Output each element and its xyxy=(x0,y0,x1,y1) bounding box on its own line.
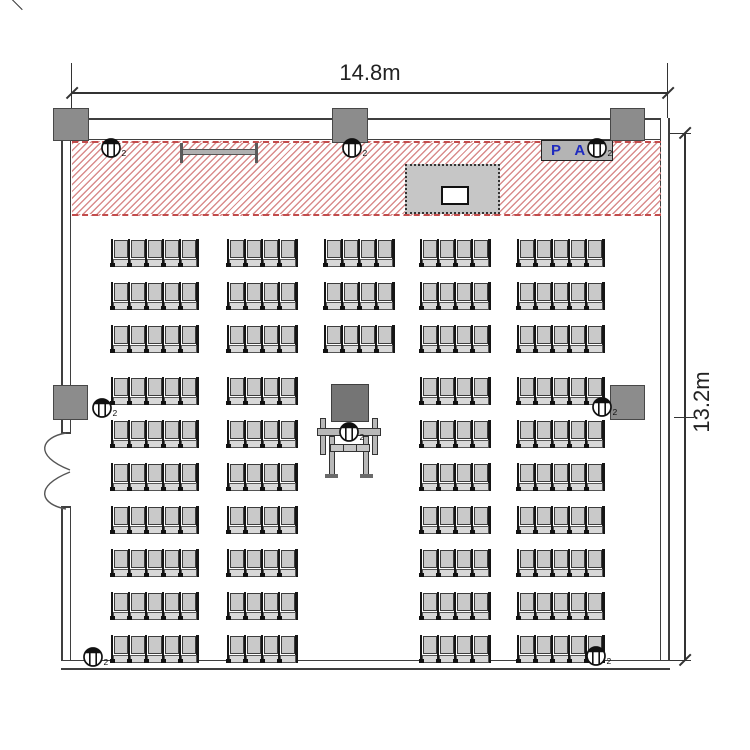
seat xyxy=(471,325,488,353)
seat-group xyxy=(227,549,298,577)
seat xyxy=(585,282,602,310)
seat xyxy=(534,549,551,577)
seat xyxy=(517,592,534,620)
seat xyxy=(534,282,551,310)
height-dimension-label: 13.2m xyxy=(689,362,715,442)
seat xyxy=(358,325,375,353)
seat xyxy=(179,282,196,310)
seat xyxy=(128,239,145,267)
seat-group xyxy=(420,282,491,310)
wall-right xyxy=(660,118,670,670)
seat-group xyxy=(111,635,199,663)
seat xyxy=(179,463,196,491)
seat-group xyxy=(420,506,491,534)
seat xyxy=(128,282,145,310)
seat xyxy=(585,592,602,620)
seat xyxy=(324,325,341,353)
seat xyxy=(471,377,488,405)
seat xyxy=(517,377,534,405)
seat xyxy=(261,635,278,663)
seat-group xyxy=(227,635,298,663)
seat xyxy=(278,463,295,491)
seat xyxy=(568,635,585,663)
seat xyxy=(517,325,534,353)
seat-group xyxy=(227,282,298,310)
seat-group xyxy=(420,463,491,491)
seat xyxy=(128,377,145,405)
seat xyxy=(420,635,437,663)
seat xyxy=(437,239,454,267)
seat xyxy=(341,325,358,353)
seat-group xyxy=(517,325,605,353)
floor-plan: 14.8m 13.2m P A 22222222 xyxy=(0,0,750,750)
seat xyxy=(471,282,488,310)
seat-group xyxy=(111,325,199,353)
speaker-count-label: 2 xyxy=(363,148,368,158)
seat-group xyxy=(227,420,298,448)
seat xyxy=(111,592,128,620)
seat xyxy=(454,420,471,448)
seat xyxy=(454,325,471,353)
seat xyxy=(145,239,162,267)
seat xyxy=(128,506,145,534)
seat-group xyxy=(324,325,395,353)
seat xyxy=(375,239,392,267)
seat xyxy=(278,635,295,663)
seat xyxy=(437,325,454,353)
seat-group xyxy=(517,463,605,491)
seat xyxy=(244,282,261,310)
seat-group xyxy=(420,377,491,405)
seat xyxy=(244,549,261,577)
seat xyxy=(358,239,375,267)
seat xyxy=(111,506,128,534)
seat xyxy=(145,420,162,448)
ceiling-speaker-icon: 2 xyxy=(339,421,369,445)
seat xyxy=(454,506,471,534)
seat xyxy=(162,325,179,353)
seat xyxy=(324,282,341,310)
seat xyxy=(179,592,196,620)
seat-group xyxy=(227,325,298,353)
seat xyxy=(454,377,471,405)
ceiling-speaker-icon: 2 xyxy=(592,396,622,420)
seat xyxy=(517,282,534,310)
seat xyxy=(551,420,568,448)
dimension-line-top xyxy=(72,92,668,94)
seat xyxy=(145,377,162,405)
whiteboard xyxy=(182,149,256,155)
column-pillar xyxy=(53,108,89,141)
dimension-extension-bottom-right xyxy=(670,660,691,661)
cart-post xyxy=(320,418,326,455)
seat xyxy=(227,592,244,620)
seat xyxy=(471,592,488,620)
projector xyxy=(331,384,369,422)
seat-group xyxy=(517,549,605,577)
seat xyxy=(128,420,145,448)
seat xyxy=(111,420,128,448)
seat xyxy=(179,635,196,663)
seat xyxy=(162,282,179,310)
seat xyxy=(517,239,534,267)
seat xyxy=(128,463,145,491)
seat-group xyxy=(111,463,199,491)
seat xyxy=(534,592,551,620)
speaker-count-label: 2 xyxy=(608,148,613,158)
seat-group xyxy=(324,282,395,310)
seat xyxy=(420,282,437,310)
seat xyxy=(471,506,488,534)
seat xyxy=(568,377,585,405)
seat xyxy=(162,549,179,577)
seat xyxy=(128,325,145,353)
seat xyxy=(162,377,179,405)
seat xyxy=(261,377,278,405)
seat xyxy=(244,377,261,405)
seat-group xyxy=(420,420,491,448)
ceiling-speaker-icon: 2 xyxy=(83,646,113,670)
seat xyxy=(358,282,375,310)
seat-group xyxy=(517,239,605,267)
seat xyxy=(227,325,244,353)
ceiling-speaker-icon: 2 xyxy=(342,137,372,161)
seat xyxy=(179,549,196,577)
cart-shelf xyxy=(330,444,370,452)
seat-group xyxy=(111,377,199,405)
seat xyxy=(420,377,437,405)
seat xyxy=(227,377,244,405)
seat xyxy=(111,239,128,267)
seat xyxy=(261,282,278,310)
seat xyxy=(437,635,454,663)
seat xyxy=(585,506,602,534)
seat xyxy=(278,239,295,267)
seat xyxy=(111,463,128,491)
seat xyxy=(534,506,551,534)
seat xyxy=(179,420,196,448)
seat xyxy=(437,506,454,534)
ceiling-speaker-icon: 2 xyxy=(586,645,616,669)
cart-foot xyxy=(360,474,373,478)
seat xyxy=(261,420,278,448)
seat-group xyxy=(420,549,491,577)
seat xyxy=(111,549,128,577)
seat xyxy=(471,239,488,267)
seat-group xyxy=(111,282,199,310)
seat xyxy=(551,282,568,310)
seat xyxy=(278,506,295,534)
seat-group xyxy=(111,420,199,448)
seat xyxy=(534,239,551,267)
seat xyxy=(227,420,244,448)
cart-post xyxy=(372,418,378,455)
seat xyxy=(261,463,278,491)
speaker-count-label: 2 xyxy=(113,408,118,418)
seat xyxy=(568,463,585,491)
seat xyxy=(551,325,568,353)
seat xyxy=(227,549,244,577)
seat xyxy=(585,549,602,577)
wall-break-mark xyxy=(3,0,22,10)
seat xyxy=(454,463,471,491)
seat xyxy=(420,239,437,267)
seat xyxy=(517,506,534,534)
seat xyxy=(568,549,585,577)
seat-group xyxy=(517,282,605,310)
seat-group xyxy=(420,592,491,620)
seat xyxy=(420,506,437,534)
seat xyxy=(568,420,585,448)
seat xyxy=(278,325,295,353)
seat xyxy=(244,239,261,267)
ceiling-speaker-icon: 2 xyxy=(92,397,122,421)
seat xyxy=(111,325,128,353)
seat xyxy=(261,549,278,577)
seat xyxy=(568,592,585,620)
seat xyxy=(568,506,585,534)
seat xyxy=(454,282,471,310)
seat xyxy=(454,549,471,577)
seat xyxy=(471,549,488,577)
seat xyxy=(551,377,568,405)
seat xyxy=(244,463,261,491)
pa-label: P A xyxy=(542,142,590,159)
seat xyxy=(162,592,179,620)
seat xyxy=(437,463,454,491)
seat xyxy=(585,420,602,448)
ceiling-speaker-icon: 2 xyxy=(101,137,131,161)
ceiling-speaker-icon: 2 xyxy=(587,137,617,161)
screen xyxy=(405,164,500,214)
seat xyxy=(471,420,488,448)
seat xyxy=(437,420,454,448)
seat xyxy=(568,325,585,353)
seat-group xyxy=(227,377,298,405)
seat xyxy=(324,239,341,267)
seat xyxy=(227,463,244,491)
seat-group xyxy=(517,592,605,620)
seat-group xyxy=(517,506,605,534)
seat xyxy=(420,325,437,353)
seat xyxy=(420,463,437,491)
seat xyxy=(261,325,278,353)
seat xyxy=(227,506,244,534)
seat xyxy=(517,635,534,663)
seat-group xyxy=(227,592,298,620)
seat xyxy=(227,282,244,310)
seat-group xyxy=(227,239,298,267)
seat xyxy=(128,592,145,620)
seat xyxy=(278,420,295,448)
seat-group xyxy=(227,463,298,491)
seat xyxy=(551,549,568,577)
cart-foot xyxy=(325,474,338,478)
seat-group xyxy=(111,592,199,620)
seat xyxy=(261,592,278,620)
seat xyxy=(278,282,295,310)
screen-inner-panel xyxy=(441,186,469,205)
seat xyxy=(517,463,534,491)
seat xyxy=(551,463,568,491)
seat xyxy=(244,592,261,620)
seat xyxy=(585,325,602,353)
seat xyxy=(375,325,392,353)
seat xyxy=(244,420,261,448)
seat xyxy=(341,239,358,267)
seat xyxy=(585,463,602,491)
speaker-count-label: 2 xyxy=(613,407,618,417)
seat xyxy=(534,377,551,405)
seat-group xyxy=(227,506,298,534)
seat xyxy=(145,325,162,353)
speaker-count-label: 2 xyxy=(104,657,109,667)
seat xyxy=(128,549,145,577)
seat xyxy=(471,635,488,663)
seat xyxy=(145,463,162,491)
seat xyxy=(244,635,261,663)
width-dimension-label: 14.8m xyxy=(330,60,410,86)
seat-group xyxy=(111,506,199,534)
seat xyxy=(420,549,437,577)
dimension-line-right xyxy=(684,133,686,661)
seat xyxy=(162,420,179,448)
seat xyxy=(534,420,551,448)
seat xyxy=(454,592,471,620)
seat-group xyxy=(111,549,199,577)
speaker-count-label: 2 xyxy=(607,656,612,666)
seat xyxy=(278,549,295,577)
seat xyxy=(244,325,261,353)
seat xyxy=(437,377,454,405)
seat xyxy=(278,592,295,620)
seat xyxy=(179,506,196,534)
seat xyxy=(145,506,162,534)
seat-group xyxy=(517,420,605,448)
seat-group xyxy=(111,239,199,267)
seat xyxy=(244,506,261,534)
speaker-count-label: 2 xyxy=(122,148,127,158)
seat xyxy=(568,239,585,267)
seat xyxy=(128,635,145,663)
seat xyxy=(179,239,196,267)
seat xyxy=(227,239,244,267)
seat xyxy=(534,463,551,491)
seat xyxy=(420,592,437,620)
seat xyxy=(162,463,179,491)
seat xyxy=(534,325,551,353)
seat xyxy=(551,635,568,663)
cart-leg xyxy=(329,436,335,476)
seat xyxy=(585,239,602,267)
seat-group xyxy=(420,239,491,267)
seat xyxy=(551,592,568,620)
seat xyxy=(145,549,162,577)
seat xyxy=(437,549,454,577)
seat xyxy=(454,635,471,663)
wall-speaker-box xyxy=(53,385,88,420)
seat xyxy=(145,635,162,663)
seat xyxy=(162,635,179,663)
seat-group xyxy=(324,239,395,267)
seat-group xyxy=(420,325,491,353)
seat xyxy=(471,463,488,491)
seat xyxy=(111,282,128,310)
seat xyxy=(111,635,128,663)
seat xyxy=(145,282,162,310)
seat xyxy=(534,635,551,663)
whiteboard-end xyxy=(255,143,258,163)
seat xyxy=(162,239,179,267)
seat xyxy=(145,592,162,620)
seat xyxy=(420,420,437,448)
seat xyxy=(551,239,568,267)
wall-left-lower xyxy=(61,507,71,670)
seat xyxy=(227,635,244,663)
seat-group xyxy=(420,635,491,663)
seat xyxy=(568,282,585,310)
seat xyxy=(162,506,179,534)
seat xyxy=(454,239,471,267)
seat xyxy=(179,325,196,353)
seat xyxy=(179,377,196,405)
seat xyxy=(341,282,358,310)
seat xyxy=(261,239,278,267)
seat xyxy=(375,282,392,310)
seat xyxy=(437,282,454,310)
seat xyxy=(517,549,534,577)
seat xyxy=(437,592,454,620)
seat xyxy=(261,506,278,534)
double-door xyxy=(14,425,74,517)
seat xyxy=(551,506,568,534)
seat xyxy=(278,377,295,405)
speaker-count-label: 2 xyxy=(360,432,365,442)
seat xyxy=(517,420,534,448)
